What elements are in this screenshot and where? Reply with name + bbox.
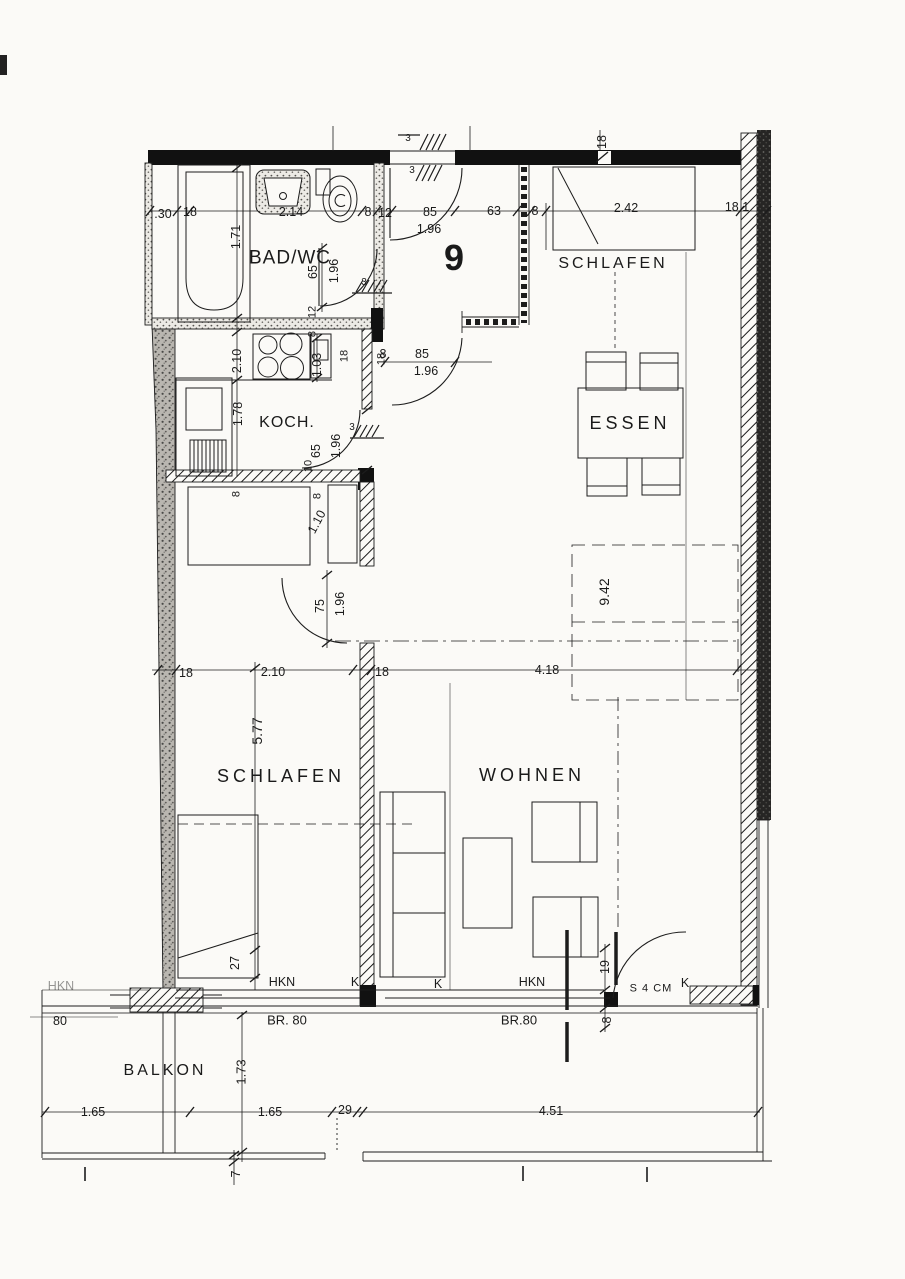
dim-171: 1.71 [230, 225, 243, 249]
door-swings [282, 168, 686, 998]
dim-8-g: 8 [601, 1017, 614, 1024]
dim-196-c: 1.96 [334, 592, 347, 616]
dim-173: 1.73 [235, 1059, 248, 1084]
wall-middle-upper [360, 482, 374, 566]
wall-partition-dashed [462, 165, 529, 333]
dim-210-v: 2.10 [231, 349, 244, 373]
wall-left-bath [145, 163, 152, 325]
balcony-anchor-block [130, 988, 203, 1012]
dim-3-a: 3 [405, 134, 411, 144]
scan-artifact [0, 55, 7, 75]
dim-19: 19 [599, 960, 612, 974]
dim-85-b: 85 [415, 348, 429, 361]
dim-8-c: 8 [308, 331, 319, 337]
dim-75: 75 [314, 599, 327, 613]
note-hkn-b: HKN [519, 976, 545, 989]
wall-kitchen-right [362, 329, 372, 409]
dim-178: 1.78 [232, 402, 245, 426]
dim-942: 9.42 [597, 578, 611, 605]
dim-80: 80 [53, 1015, 67, 1028]
room-label-schlafen-top: SCHLAFEN [558, 256, 667, 272]
wall-left-outer [152, 325, 175, 992]
room-label-wohnen: WOHNEN [479, 766, 585, 784]
dim-210-h: 2.10 [261, 666, 285, 679]
hall-shelf [328, 485, 357, 563]
wall-pier-bottom-right [690, 986, 753, 1004]
note-s4cm: S 4 CM [630, 984, 673, 995]
dim-29: 29 [338, 1104, 352, 1117]
dim-451: 4.51 [539, 1105, 563, 1118]
dim-165-a: 1.65 [81, 1106, 105, 1119]
interior-walls [110, 163, 759, 1153]
note-br80-a: BR. 80 [267, 1014, 307, 1027]
note-k-c: K [681, 977, 689, 990]
hall-closet [188, 487, 310, 565]
dim-3-d: 3 [349, 423, 355, 433]
dim-18-f: 18 [375, 666, 389, 679]
dim-18-wall: 18 [596, 135, 609, 149]
furniture [176, 165, 695, 978]
wall-right-dark [757, 130, 771, 820]
dim-3-c: 3 [361, 278, 367, 288]
dim-85-a: 85 [423, 206, 437, 219]
room-label-schlafen: SCHLAFEN [217, 767, 345, 785]
dim-63: 63 [487, 205, 501, 218]
dim-577: 5.77 [250, 717, 264, 744]
dim-103: 1.03 [311, 353, 324, 377]
note-hkn-left: HKN [48, 980, 74, 993]
note-br80-b: BR.80 [501, 1014, 537, 1027]
dim-165-b: 1.65 [258, 1106, 282, 1119]
dim-418: 4.18 [535, 664, 559, 677]
dim-8-b: 8 [532, 205, 539, 218]
note-k-b: K [434, 978, 442, 991]
armchair-1 [532, 802, 597, 862]
dim-65-koch: 65 [310, 444, 323, 458]
note-hkn-a: HKN [269, 976, 295, 989]
coffee-table [463, 838, 512, 928]
dim-7: 7 [230, 1171, 243, 1178]
dim-8-f: 8 [313, 493, 324, 499]
floor-plan-drawing [0, 0, 905, 1279]
windows-and-balcony [30, 990, 772, 1182]
wall-bath-bottom [152, 318, 384, 329]
dim-30: .30 [154, 208, 171, 221]
dim-181: 18.1 [725, 201, 749, 214]
room-label-balkon: BALKON [124, 1063, 207, 1079]
dim-18-a: 18 [183, 206, 197, 219]
dim-12-a: 12 [378, 207, 392, 220]
wall-top-left [148, 150, 390, 165]
floor-plan-page: BAD/WCSCHLAFENKOCH.ESSENSCHLAFENWOHNENBA… [0, 0, 905, 1279]
dim-196-a: 1.96 [417, 223, 441, 236]
dim-196-b: 1.96 [414, 365, 438, 378]
dim-3-b: 3 [409, 166, 415, 176]
wall-right-hatched [741, 133, 757, 1005]
toilet-icon [316, 169, 357, 222]
apartment-number: 9 [444, 240, 464, 276]
sofa-icon [380, 792, 445, 977]
stove-icon [253, 333, 310, 380]
room-label-koch: KOCH. [259, 415, 315, 431]
dim-8-e: 8 [232, 491, 243, 497]
dim-8-d: 8 [380, 348, 387, 361]
dim-12-b: 12 [308, 306, 319, 318]
dim-10: 10 [304, 460, 315, 472]
dim-242: 2.42 [614, 202, 638, 215]
note-k-a: K [351, 976, 359, 989]
dashed-zone [572, 545, 738, 700]
dim-214: 2.14 [279, 206, 303, 219]
dim-196-bath: 1.96 [328, 259, 341, 283]
dim-8-a: 8 [365, 206, 372, 219]
room-label-essen: ESSEN [589, 414, 670, 432]
dim-196-koch: 1.96 [330, 434, 343, 458]
dim-27: 27 [229, 956, 242, 970]
wall-bath-right [374, 163, 384, 318]
dim-18-c: 18 [340, 350, 351, 362]
dim-65-bath: 65 [307, 265, 320, 279]
fridge-icon [176, 378, 232, 476]
dim-18-e: 18 [179, 667, 193, 680]
bed-icon [178, 815, 258, 978]
